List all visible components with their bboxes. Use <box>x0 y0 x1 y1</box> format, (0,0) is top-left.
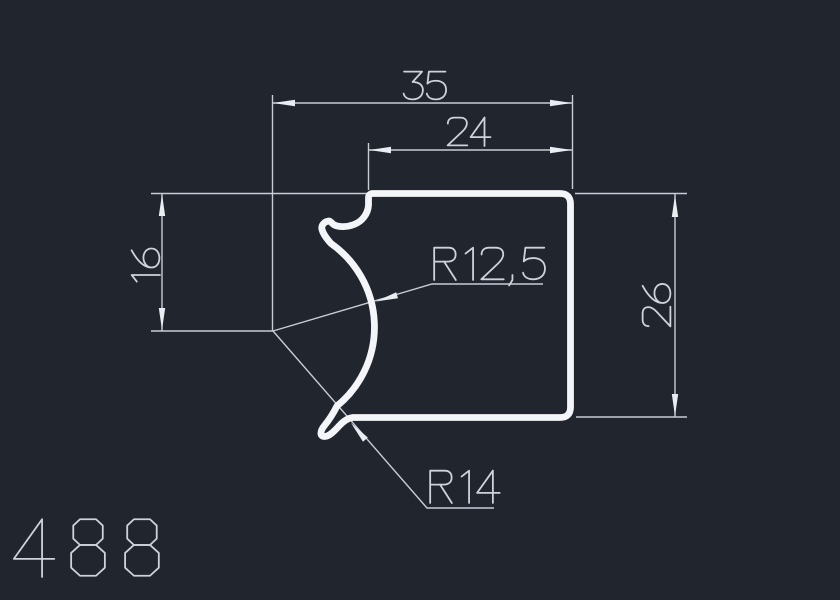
dim-text-overall-width <box>404 72 446 100</box>
leader-line-r12-5 <box>273 284 543 331</box>
arrow-r14 <box>351 423 368 442</box>
arrow-26-top <box>672 195 678 217</box>
dimension-lines <box>162 103 675 417</box>
cad-drawing-canvas: Profile 488 cross-section drawing <box>0 0 840 600</box>
profile-outline <box>321 194 571 437</box>
dim-text-left-height <box>132 248 160 281</box>
radius-leaders <box>273 284 543 508</box>
arrow-24-left <box>369 147 391 153</box>
dim-text-top-width <box>448 118 491 146</box>
arrowheads <box>159 100 678 442</box>
extension-lines <box>151 95 687 417</box>
radius-text-r12-5 <box>434 248 545 286</box>
arrow-35-right <box>550 100 572 106</box>
arrow-16-bottom <box>159 308 165 330</box>
arrow-35-left <box>273 100 295 106</box>
dim-text-right-height <box>643 284 671 326</box>
cad-drawing-viewport: Profile 488 cross-section drawing <box>0 0 840 600</box>
arrow-26-bottom <box>672 394 678 416</box>
profile-number-text <box>14 519 159 577</box>
arrow-16-top <box>159 194 165 216</box>
radius-text-r14 <box>430 471 500 503</box>
arrow-r12-5 <box>376 292 398 301</box>
arrow-24-right <box>550 147 572 153</box>
